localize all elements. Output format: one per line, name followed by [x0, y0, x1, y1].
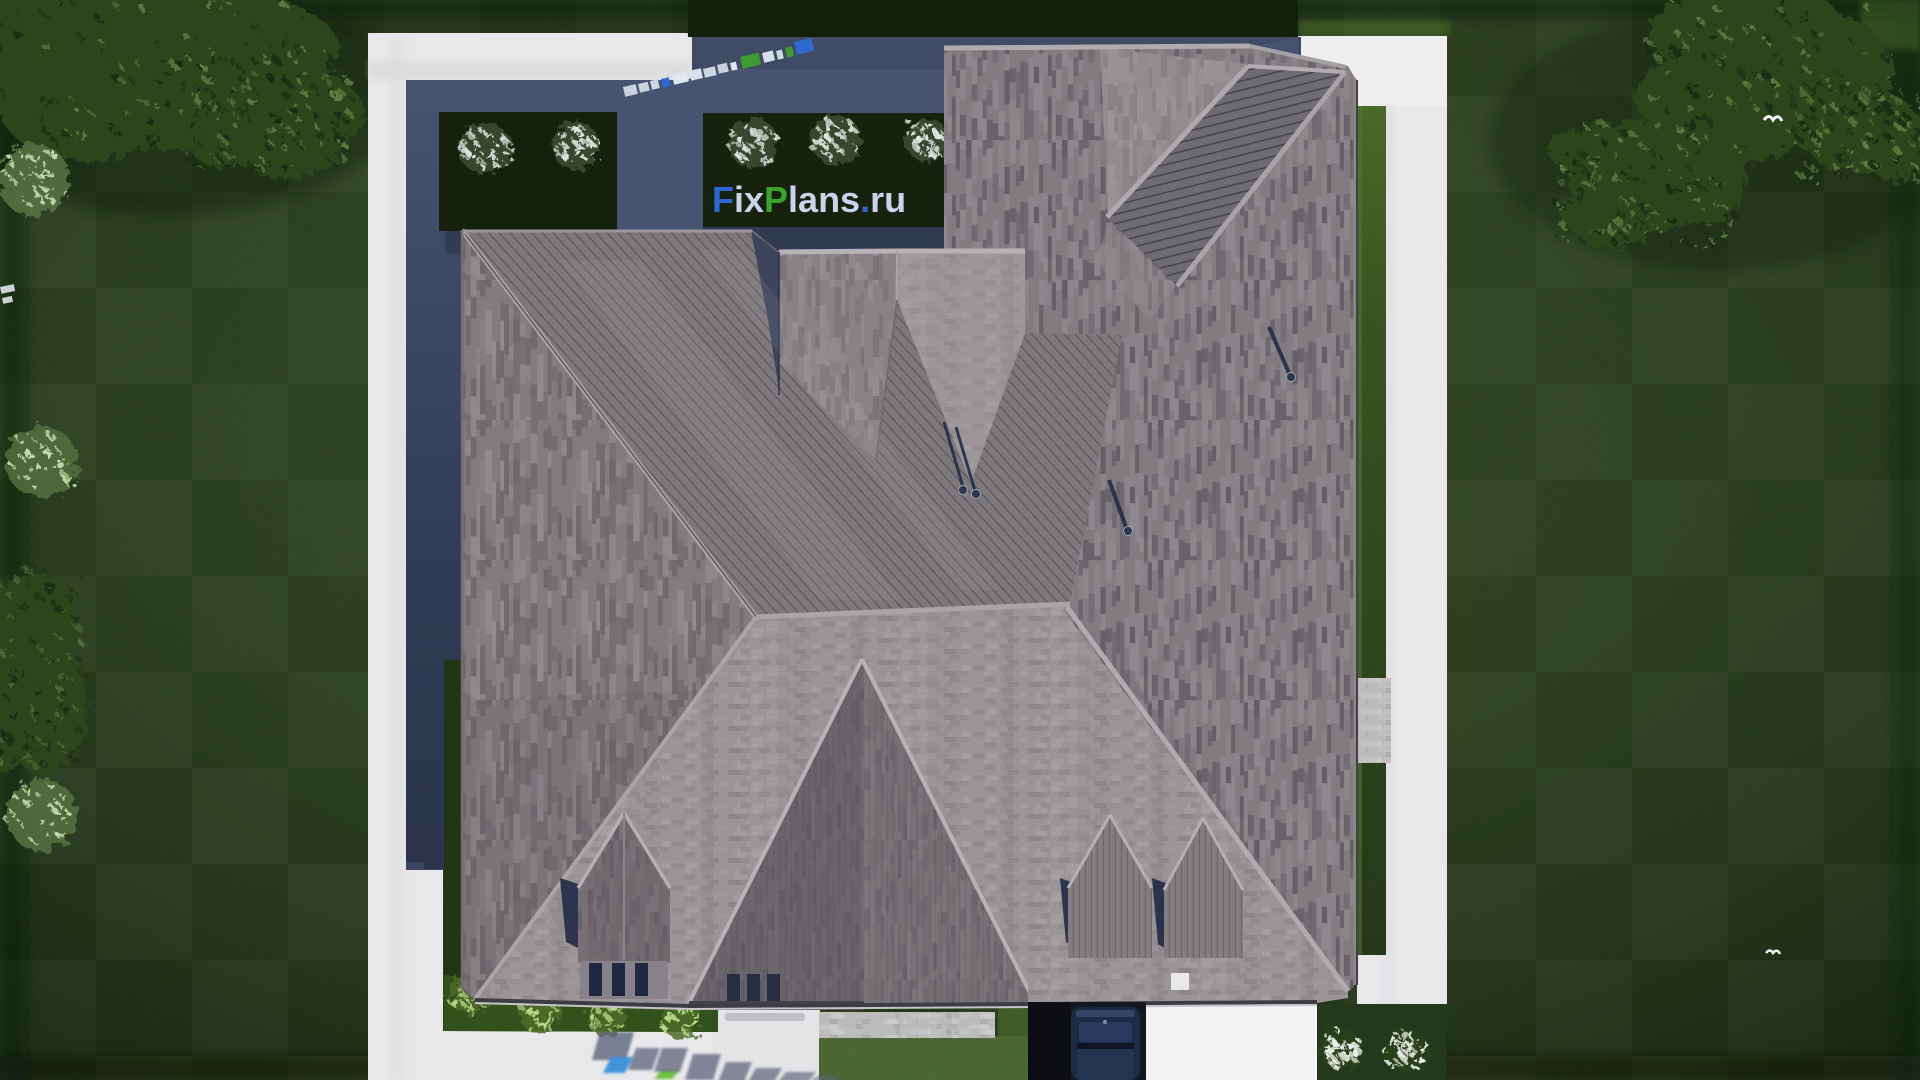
- svg-text:FixPlans.ru: FixPlans.ru: [712, 179, 906, 220]
